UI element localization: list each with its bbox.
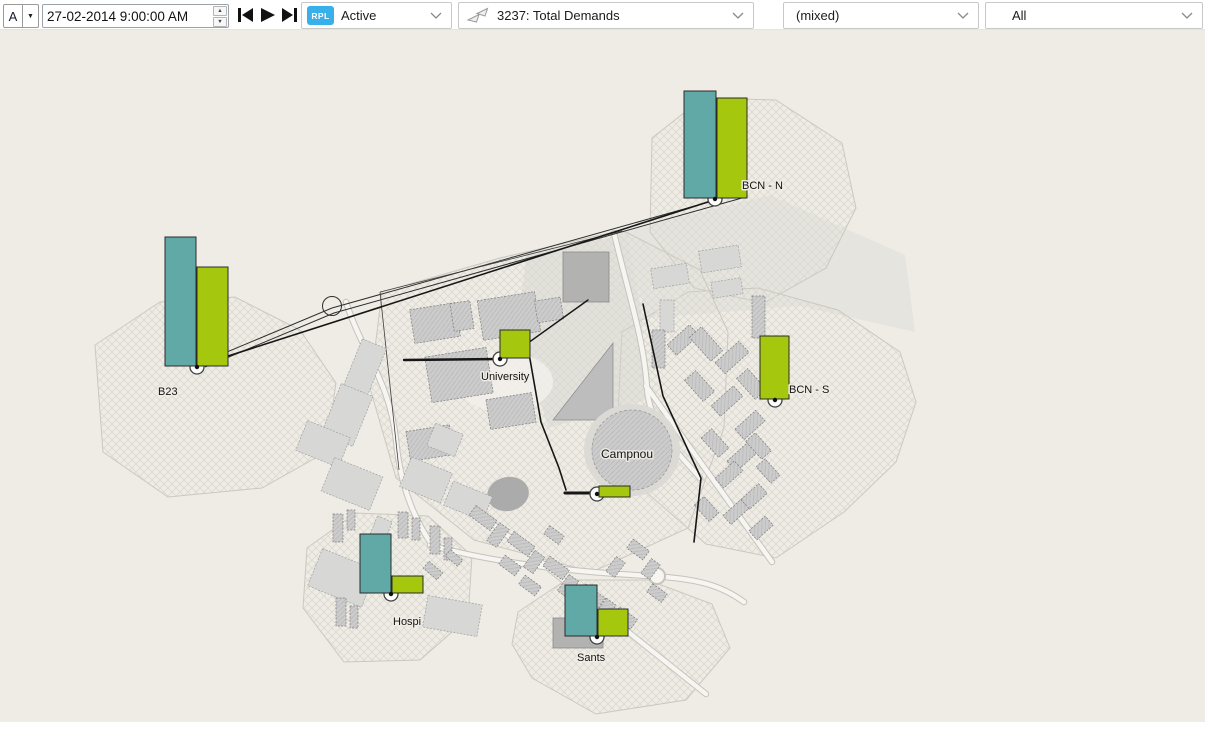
demand-bar-green[interactable] [197,267,228,366]
site-label: BCN - N [742,180,783,192]
building [398,512,408,538]
building [412,518,420,540]
building [652,330,665,368]
building [430,526,440,554]
junction-node-dot [389,592,393,596]
demand-bar-green[interactable] [500,330,530,358]
junction-node-dot [498,357,502,361]
map-canvas[interactable]: B23BCN - NBCN - SUniversityHospiSantsCam… [0,30,1205,722]
spinner-up-icon[interactable]: ▲ [213,6,227,16]
building [752,296,765,338]
site-label: B23 [158,386,178,398]
building [333,514,343,542]
datetime-input[interactable] [43,9,197,24]
demands-value: 3237: Total Demands [497,8,620,23]
scope-value: All [1012,8,1026,23]
skip-to-end-icon [281,7,298,23]
chevron-down-icon [430,12,442,20]
play-icon [259,7,276,23]
demand-bar-green[interactable] [760,336,789,399]
building [350,606,358,628]
demand-bar-teal[interactable] [165,237,196,366]
site-label: Hospi [393,616,421,628]
bottom-strip [0,722,1205,730]
demands-icon [466,7,490,24]
demand-bar-teal[interactable] [360,534,391,593]
map-label: Campnou [601,447,653,461]
site-label: BCN - S [789,384,829,396]
datetime-field: ▲ ▼ [42,4,229,28]
caret-down-icon[interactable]: ▼ [23,5,38,27]
scope-combobox[interactable]: All [985,2,1203,29]
chevron-down-icon [957,12,969,20]
mixed-value: (mixed) [796,8,839,23]
rpl-scenario-combobox[interactable]: RPL Active [301,2,452,29]
play-button[interactable] [258,6,277,24]
top-toolbar: A ▼ ▲ ▼ RPL Active 3237: [0,0,1205,30]
building [563,252,609,302]
datetime-spinner: ▲ ▼ [213,6,227,26]
frame-select-label: A [4,5,23,27]
demands-combobox[interactable]: 3237: Total Demands [458,2,754,29]
demand-bar-green[interactable] [599,486,630,497]
junction-node-dot [195,365,199,369]
spinner-down-icon[interactable]: ▼ [213,17,227,27]
frame-select-button[interactable]: A ▼ [3,4,39,28]
site-label: University [481,371,530,383]
demand-bar-green[interactable] [392,576,423,593]
building [347,510,355,530]
building [534,297,563,323]
site-label: Sants [577,652,606,664]
building [450,301,474,332]
skip-to-end-button[interactable] [280,6,299,24]
junction-node-dot [713,197,717,201]
demand-bar-teal[interactable] [565,585,597,636]
mixed-combobox[interactable]: (mixed) [783,2,979,29]
building [660,300,674,332]
demand-bar-teal[interactable] [684,91,716,198]
skip-to-start-icon [237,7,254,23]
rpl-value: Active [341,8,376,23]
junction-node-dot [595,635,599,639]
junction-node-dot [773,398,777,402]
building [336,598,346,626]
chevron-down-icon [732,12,744,20]
skip-to-start-button[interactable] [236,6,255,24]
map-svg: B23BCN - NBCN - SUniversityHospiSantsCam… [0,30,1205,722]
demand-bar-green[interactable] [598,609,628,636]
rpl-badge: RPL [307,6,334,25]
chevron-down-icon [1181,12,1193,20]
junction-node-dot [595,492,599,496]
